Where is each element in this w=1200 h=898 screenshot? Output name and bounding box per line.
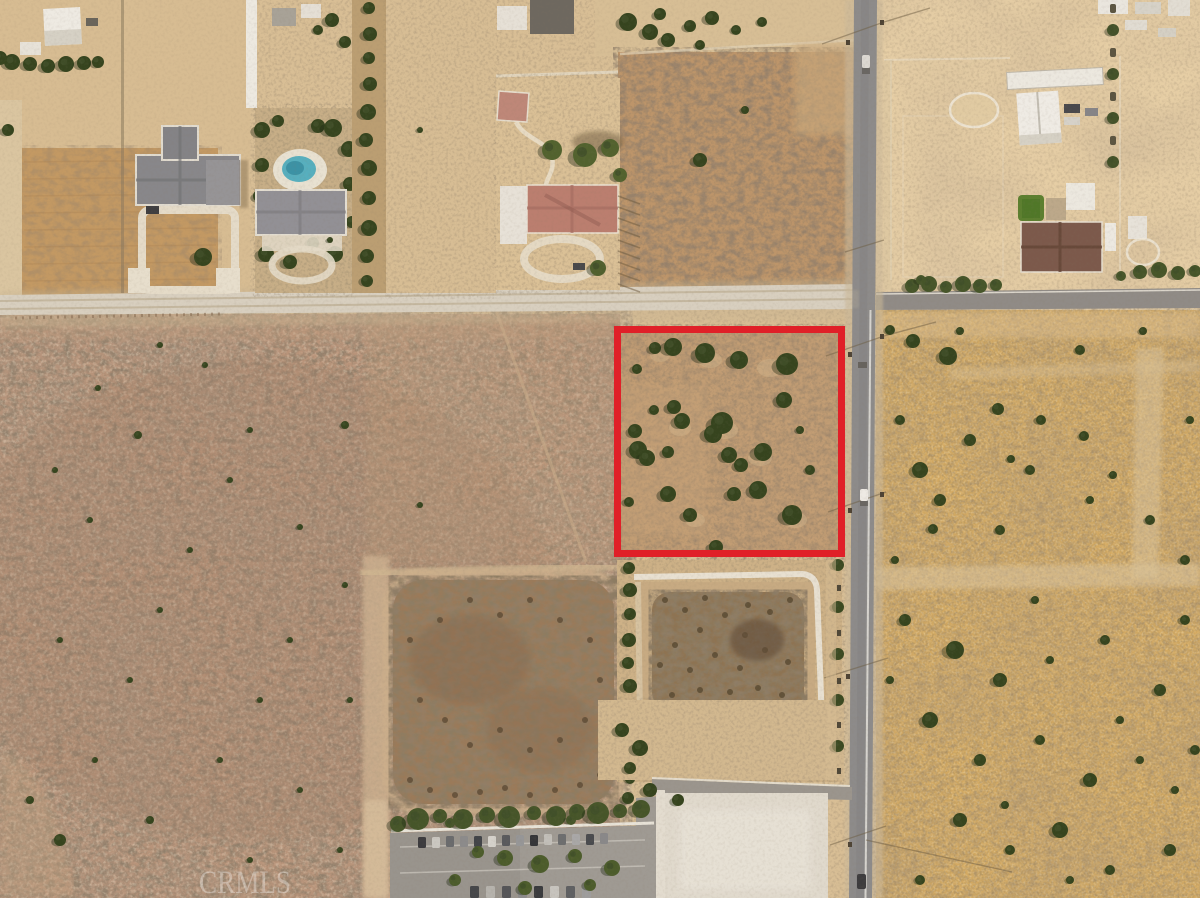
- svg-text:CRMLS: CRMLS: [199, 865, 291, 898]
